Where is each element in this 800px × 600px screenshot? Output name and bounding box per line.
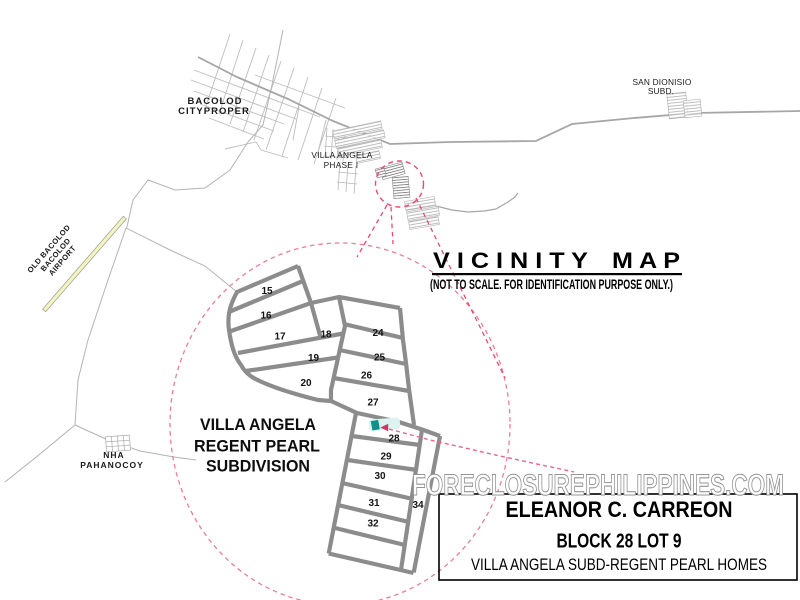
svg-text:30: 30 [374, 471, 386, 482]
svg-text:26: 26 [361, 371, 373, 382]
svg-text:24: 24 [372, 328, 384, 339]
svg-text:20: 20 [300, 378, 312, 389]
svg-text:V I C I N I T Y: V I C I N I T Y [433, 248, 588, 273]
svg-text:VILLA ANGELA: VILLA ANGELA [311, 150, 372, 160]
svg-text:16: 16 [260, 311, 272, 322]
svg-text:VILLA ANGELA SUBD-REGENT PEARL: VILLA ANGELA SUBD-REGENT PEARL HOMES [471, 555, 767, 574]
svg-text:NHA: NHA [103, 450, 124, 460]
svg-text:31: 31 [368, 498, 380, 509]
svg-text:(NOT TO SCALE. FOR IDENTIFICAT: (NOT TO SCALE. FOR IDENTIFICATION PURPOS… [430, 277, 673, 292]
svg-text:29: 29 [380, 452, 392, 463]
svg-text:25: 25 [374, 353, 386, 364]
svg-text:CITYPROPER: CITYPROPER [178, 106, 250, 117]
svg-text:REGENT PEARL: REGENT PEARL [194, 437, 320, 456]
svg-text:FORECLOSUREPHILIPPINES.COM: FORECLOSUREPHILIPPINES.COM [412, 469, 784, 502]
svg-text:PHASE I: PHASE I [324, 160, 359, 170]
svg-text:SUBDIVISION: SUBDIVISION [206, 457, 310, 476]
svg-text:PAHANOCOY: PAHANOCOY [80, 460, 144, 470]
svg-text:18: 18 [320, 330, 332, 341]
svg-text:M A P: M A P [612, 248, 680, 273]
svg-text:BLOCK 28 LOT 9: BLOCK 28 LOT 9 [557, 531, 682, 553]
svg-text:19: 19 [308, 353, 320, 364]
svg-text:17: 17 [274, 332, 286, 343]
svg-text:15: 15 [261, 286, 273, 297]
svg-text:28: 28 [388, 434, 400, 445]
svg-text:27: 27 [367, 398, 379, 409]
svg-text:32: 32 [367, 519, 379, 530]
svg-text:VILLA ANGELA: VILLA ANGELA [200, 415, 316, 434]
svg-text:SUBD.: SUBD. [648, 86, 674, 96]
